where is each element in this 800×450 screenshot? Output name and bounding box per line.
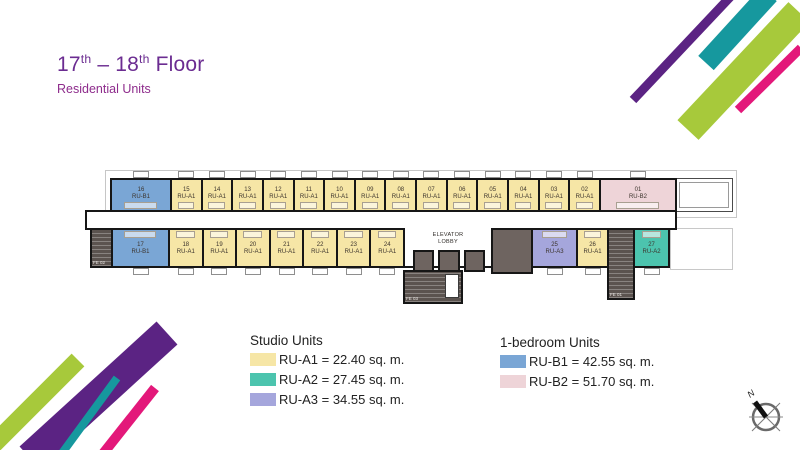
unit-08: 08RU-A1 — [384, 178, 417, 212]
unit-20: 20RU-A1 — [235, 228, 271, 268]
floor-plan: 16RU-B115RU-A114RU-A113RU-A112RU-A111RU-… — [85, 160, 735, 320]
elevator-lobby-label: ELEVATORLOBBY — [405, 232, 491, 246]
legend-item: RU-A1 = 22.40 sq. m. — [250, 352, 404, 366]
fire-exit-01: FE 01 — [607, 228, 635, 300]
unit-number: 14 — [203, 187, 232, 194]
unit-type: RU-A2 — [635, 249, 668, 256]
unit-number: 20 — [237, 242, 269, 249]
unit-22: 22RU-A1 — [302, 228, 338, 268]
fire-exit-02: FE 02 — [90, 228, 113, 268]
unit-number: 05 — [478, 187, 507, 194]
page-title: 17th – 18th Floor — [57, 52, 205, 77]
unit-type: RU-A1 — [338, 249, 370, 256]
unit-type: RU-A1 — [578, 249, 607, 256]
unit-type: RU-A1 — [172, 194, 201, 201]
legend-swatch — [250, 353, 276, 366]
unit-type: RU-A1 — [170, 249, 202, 256]
elevator-lobby-label-line1: ELEVATOR — [405, 232, 491, 239]
legend-item-text: RU-B2 = 51.70 sq. m. — [529, 374, 654, 389]
legend-one-bedroom-title: 1-bedroom Units — [500, 335, 654, 350]
unit-type: RU-A3 — [533, 249, 576, 256]
unit-14: 14RU-A1 — [201, 178, 234, 212]
unit-type: RU-A1 — [237, 249, 269, 256]
unit-type: RU-A1 — [371, 249, 403, 256]
unit-number: 10 — [325, 187, 354, 194]
unit-number: 18 — [170, 242, 202, 249]
unit-type: RU-B1 — [113, 249, 168, 256]
decoration-bottom-left — [0, 310, 200, 450]
open-deck-bottom — [670, 228, 733, 270]
unit-number: 01 — [601, 187, 675, 194]
service-area — [491, 228, 533, 274]
legend-item-text: RU-A2 = 27.45 sq. m. — [279, 372, 404, 387]
unit-type: RU-A1 — [417, 194, 446, 201]
unit-number: 23 — [338, 242, 370, 249]
unit-type: RU-A1 — [264, 194, 293, 201]
legend-swatch — [500, 375, 526, 388]
unit-type: RU-A1 — [570, 194, 599, 201]
unit-11: 11RU-A1 — [293, 178, 326, 212]
legend-item-text: RU-A1 = 22.40 sq. m. — [279, 352, 404, 367]
unit-number: 21 — [271, 242, 303, 249]
unit-19: 19RU-A1 — [202, 228, 238, 268]
unit-type: RU-A1 — [233, 194, 262, 201]
unit-type: RU-A1 — [295, 194, 324, 201]
legend-one-bedroom-items: RU-B1 = 42.55 sq. m.RU-B2 = 51.70 sq. m. — [500, 354, 654, 388]
legend-item-text: RU-B1 = 42.55 sq. m. — [529, 354, 654, 369]
unit-type: RU-A1 — [478, 194, 507, 201]
unit-type: RU-B2 — [601, 194, 675, 201]
unit-type: RU-A1 — [386, 194, 415, 201]
unit-type: RU-A1 — [325, 194, 354, 201]
unit-number: 06 — [448, 187, 477, 194]
unit-17: 17RU-B1 — [111, 228, 170, 268]
unit-12: 12RU-A1 — [262, 178, 295, 212]
fire-exit-01-label: FE 01 — [610, 292, 622, 297]
compass-north-icon: N — [742, 385, 788, 441]
unit-21: 21RU-A1 — [269, 228, 305, 268]
legend-item: RU-A2 = 27.45 sq. m. — [250, 372, 404, 386]
unit-number: 11 — [295, 187, 324, 194]
legend-item: RU-A3 = 34.55 sq. m. — [250, 392, 404, 406]
unit-number: 25 — [533, 242, 576, 249]
legend-swatch — [500, 355, 526, 368]
unit-07: 07RU-A1 — [415, 178, 448, 212]
compass-n-label: N — [745, 387, 756, 399]
unit-01: 01RU-B2 — [599, 178, 677, 212]
open-deck-top — [675, 178, 733, 212]
unit-type: RU-B1 — [112, 194, 170, 201]
title-block: 17th – 18th Floor Residential Units — [57, 52, 205, 96]
unit-type: RU-A1 — [271, 249, 303, 256]
unit-04: 04RU-A1 — [507, 178, 540, 212]
unit-number: 16 — [112, 187, 170, 194]
unit-18: 18RU-A1 — [168, 228, 204, 268]
unit-number: 19 — [204, 242, 236, 249]
unit-number: 09 — [356, 187, 385, 194]
unit-25: 25RU-A3 — [531, 228, 578, 268]
unit-type: RU-A1 — [304, 249, 336, 256]
elevator-cab — [464, 250, 485, 272]
legend-item-text: RU-A3 = 34.55 sq. m. — [279, 392, 404, 407]
unit-number: 15 — [172, 187, 201, 194]
unit-type: RU-A1 — [204, 249, 236, 256]
unit-number: 27 — [635, 242, 668, 249]
unit-number: 12 — [264, 187, 293, 194]
unit-number: 22 — [304, 242, 336, 249]
unit-number: 17 — [113, 242, 168, 249]
unit-number: 13 — [233, 187, 262, 194]
legend-one-bedroom: 1-bedroom Units RU-B1 = 42.55 sq. m.RU-B… — [500, 335, 654, 394]
legend-item: RU-B2 = 51.70 sq. m. — [500, 374, 654, 388]
page-subtitle: Residential Units — [57, 82, 205, 96]
unit-number: 03 — [540, 187, 569, 194]
unit-06: 06RU-A1 — [446, 178, 479, 212]
unit-23: 23RU-A1 — [336, 228, 372, 268]
unit-number: 08 — [386, 187, 415, 194]
bottom-units-row: FE 0217RU-B118RU-A119RU-A120RU-A121RU-A1… — [90, 228, 670, 300]
unit-26: 26RU-A1 — [576, 228, 609, 268]
legend-swatch — [250, 373, 276, 386]
unit-number: 02 — [570, 187, 599, 194]
corridor — [85, 210, 677, 230]
unit-09: 09RU-A1 — [354, 178, 387, 212]
slide: 17th – 18th Floor Residential Units 16RU… — [0, 0, 800, 450]
unit-number: 07 — [417, 187, 446, 194]
top-units-row: 16RU-B115RU-A114RU-A113RU-A112RU-A111RU-… — [110, 178, 677, 212]
unit-15: 15RU-A1 — [170, 178, 203, 212]
unit-05: 05RU-A1 — [476, 178, 509, 212]
unit-10: 10RU-A1 — [323, 178, 356, 212]
elevator-cabs — [413, 250, 485, 272]
elevator-lobby-label-line2: LOBBY — [405, 239, 491, 246]
elevator-lobby: ELEVATORLOBBY — [403, 228, 493, 268]
unit-13: 13RU-A1 — [231, 178, 264, 212]
unit-02: 02RU-A1 — [568, 178, 601, 212]
unit-27: 27RU-A2 — [633, 228, 670, 268]
legend-studio-title: Studio Units — [250, 333, 404, 348]
unit-24: 24RU-A1 — [369, 228, 405, 268]
unit-type: RU-A1 — [540, 194, 569, 201]
unit-number: 24 — [371, 242, 403, 249]
unit-03: 03RU-A1 — [538, 178, 571, 212]
unit-type: RU-A1 — [203, 194, 232, 201]
legend-swatch — [250, 393, 276, 406]
unit-number: 26 — [578, 242, 607, 249]
unit-type: RU-A1 — [356, 194, 385, 201]
unit-type: RU-A1 — [448, 194, 477, 201]
elevator-cab — [438, 250, 459, 272]
legend-studio: Studio Units RU-A1 = 22.40 sq. m.RU-A2 =… — [250, 333, 404, 412]
unit-number: 04 — [509, 187, 538, 194]
elevator-cab — [413, 250, 434, 272]
unit-16: 16RU-B1 — [110, 178, 172, 212]
decoration-top-right — [615, 0, 800, 140]
fire-exit-02-label: FE 02 — [93, 260, 105, 265]
legend-studio-items: RU-A1 = 22.40 sq. m.RU-A2 = 27.45 sq. m.… — [250, 352, 404, 406]
legend-item: RU-B1 = 42.55 sq. m. — [500, 354, 654, 368]
unit-type: RU-A1 — [509, 194, 538, 201]
